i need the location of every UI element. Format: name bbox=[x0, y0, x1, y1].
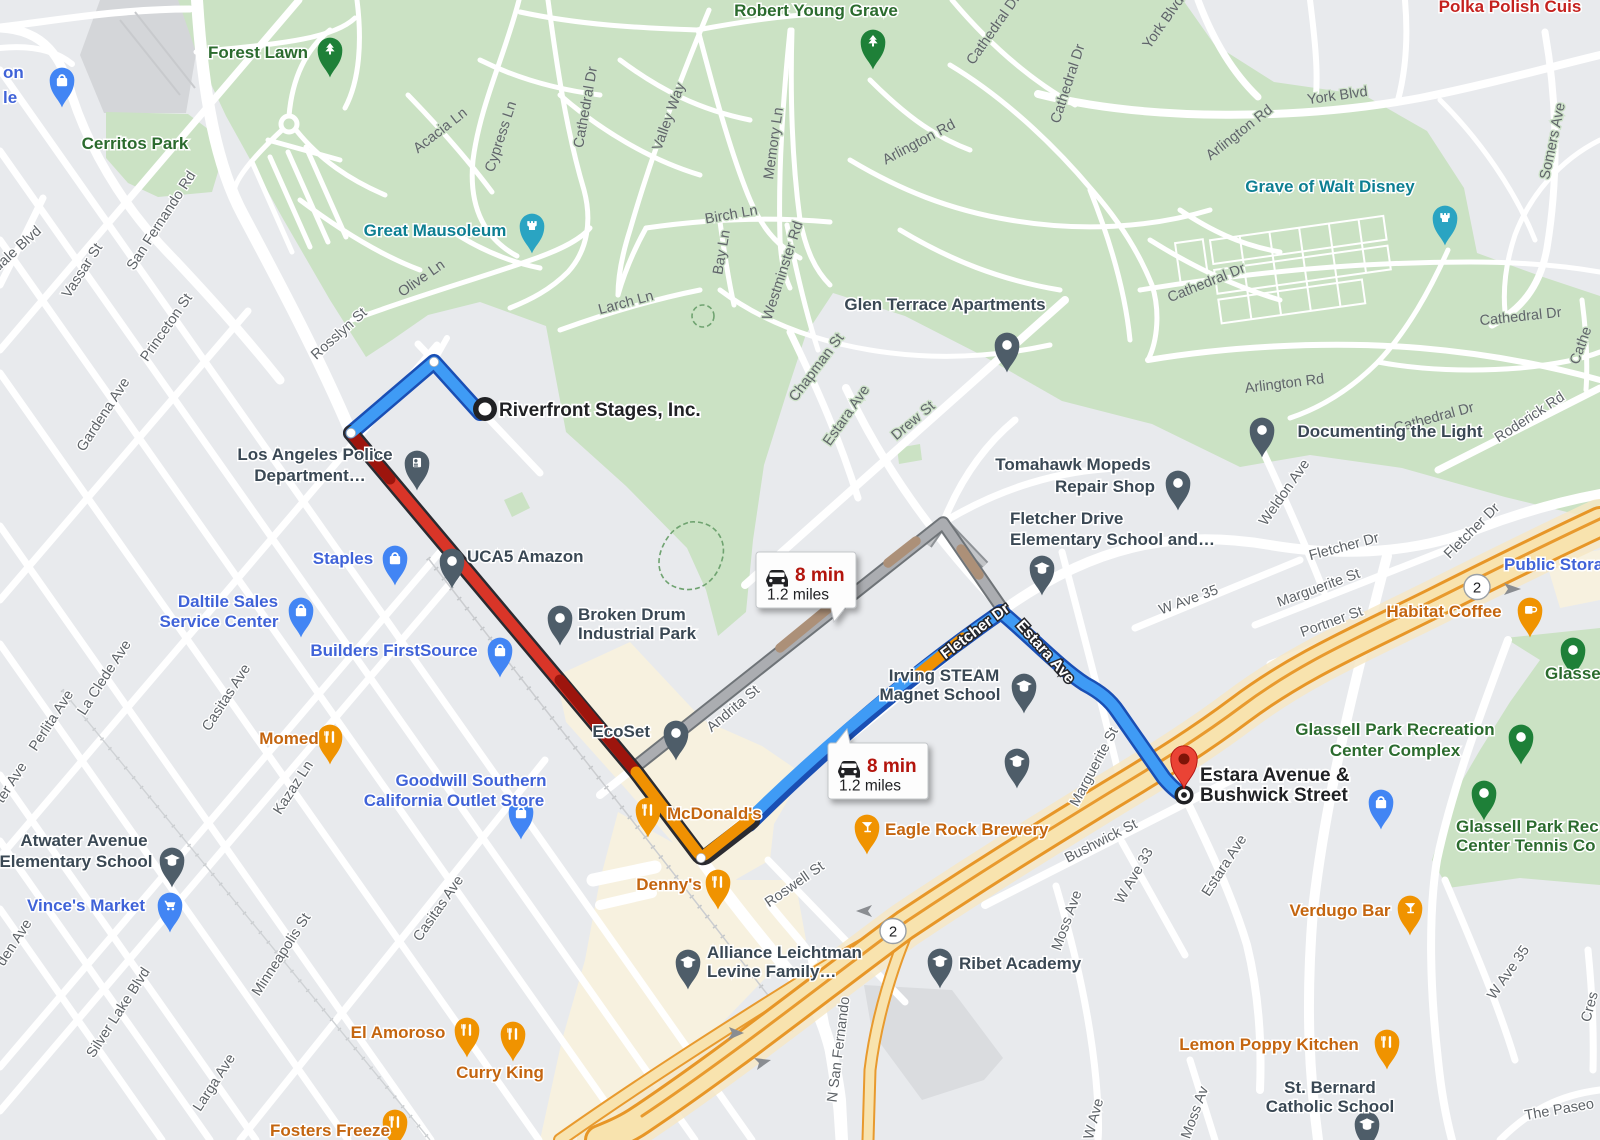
svg-text:Atwater Avenue: Atwater Avenue bbox=[20, 831, 147, 850]
svg-text:Momed: Momed bbox=[259, 729, 319, 748]
svg-text:Robert Young Grave: Robert Young Grave bbox=[734, 1, 898, 20]
svg-text:Bushwick Street: Bushwick Street bbox=[1200, 785, 1348, 806]
svg-text:Eagle Rock Brewery: Eagle Rock Brewery bbox=[885, 820, 1049, 839]
svg-text:Public Stora: Public Stora bbox=[1504, 555, 1600, 574]
svg-text:Repair Shop: Repair Shop bbox=[1055, 477, 1155, 496]
svg-text:El Amoroso: El Amoroso bbox=[351, 1023, 446, 1042]
svg-text:Magnet School: Magnet School bbox=[880, 685, 1001, 704]
svg-text:Staples: Staples bbox=[313, 549, 373, 568]
svg-text:Documenting the Light: Documenting the Light bbox=[1297, 422, 1482, 441]
svg-text:8 min: 8 min bbox=[867, 756, 917, 777]
svg-text:on: on bbox=[3, 63, 24, 82]
svg-text:Riverfront Stages, Inc.: Riverfront Stages, Inc. bbox=[499, 400, 701, 421]
svg-text:Alliance Leichtman: Alliance Leichtman bbox=[707, 943, 862, 962]
svg-text:Glassell Park Rec: Glassell Park Rec bbox=[1456, 817, 1599, 836]
svg-text:Daltile Sales: Daltile Sales bbox=[178, 592, 278, 611]
svg-text:8 min: 8 min bbox=[795, 565, 845, 586]
svg-text:EcoSet: EcoSet bbox=[592, 722, 650, 741]
svg-text:Estara Avenue &: Estara Avenue & bbox=[1200, 765, 1350, 786]
svg-text:Los Angeles Police: Los Angeles Police bbox=[237, 445, 392, 464]
svg-text:Glassell Park Recreation: Glassell Park Recreation bbox=[1295, 720, 1494, 739]
svg-text:Great Mausoleum: Great Mausoleum bbox=[364, 221, 507, 240]
svg-text:Verdugo Bar: Verdugo Bar bbox=[1289, 901, 1390, 920]
svg-text:Ribet Academy: Ribet Academy bbox=[959, 954, 1082, 973]
svg-text:St. Bernard: St. Bernard bbox=[1284, 1078, 1376, 1097]
svg-text:Grave of Walt Disney: Grave of Walt Disney bbox=[1245, 177, 1415, 196]
svg-text:Denny's: Denny's bbox=[636, 875, 701, 894]
svg-text:Center Complex: Center Complex bbox=[1330, 741, 1461, 760]
svg-text:Goodwill Southern: Goodwill Southern bbox=[395, 771, 546, 790]
svg-text:UCA5 Amazon: UCA5 Amazon bbox=[467, 547, 584, 566]
svg-text:Levine Family…: Levine Family… bbox=[707, 962, 836, 981]
svg-text:McDonald's: McDonald's bbox=[667, 804, 762, 823]
svg-text:Broken Drum: Broken Drum bbox=[578, 605, 686, 624]
svg-text:Service Center: Service Center bbox=[159, 612, 278, 631]
svg-text:Curry King: Curry King bbox=[456, 1063, 544, 1082]
svg-text:Forest Lawn: Forest Lawn bbox=[208, 43, 308, 62]
svg-text:Fosters Freeze: Fosters Freeze bbox=[270, 1121, 390, 1140]
svg-text:Glasse: Glasse bbox=[1545, 664, 1600, 683]
svg-text:1.2 miles: 1.2 miles bbox=[839, 778, 901, 795]
svg-text:Fletcher Drive: Fletcher Drive bbox=[1010, 509, 1123, 528]
svg-text:Elementary School and…: Elementary School and… bbox=[1010, 530, 1215, 549]
svg-text:le: le bbox=[3, 88, 17, 107]
svg-text:Industrial Park: Industrial Park bbox=[578, 624, 697, 643]
svg-text:Catholic School: Catholic School bbox=[1266, 1097, 1394, 1116]
svg-text:Tomahawk Mopeds: Tomahawk Mopeds bbox=[995, 455, 1151, 474]
svg-text:2: 2 bbox=[889, 924, 897, 941]
svg-text:Center Tennis Co: Center Tennis Co bbox=[1456, 836, 1595, 855]
svg-text:Habitat Coffee: Habitat Coffee bbox=[1386, 602, 1501, 621]
svg-text:1.2 miles: 1.2 miles bbox=[767, 587, 829, 604]
svg-text:Polka Polish Cuis: Polka Polish Cuis bbox=[1439, 0, 1582, 16]
svg-text:Irving STEAM: Irving STEAM bbox=[889, 666, 1000, 685]
svg-text:Elementary School: Elementary School bbox=[0, 852, 153, 871]
svg-text:Cerritos Park: Cerritos Park bbox=[82, 134, 189, 153]
svg-text:Glen Terrace Apartments: Glen Terrace Apartments bbox=[844, 295, 1045, 314]
svg-text:California Outlet Store: California Outlet Store bbox=[364, 791, 544, 810]
svg-text:Lemon Poppy Kitchen: Lemon Poppy Kitchen bbox=[1179, 1035, 1358, 1054]
svg-text:2: 2 bbox=[1473, 580, 1481, 597]
svg-text:Vince's Market: Vince's Market bbox=[27, 896, 145, 915]
svg-text:Department…: Department… bbox=[254, 466, 365, 485]
svg-text:Builders FirstSource: Builders FirstSource bbox=[310, 641, 477, 660]
